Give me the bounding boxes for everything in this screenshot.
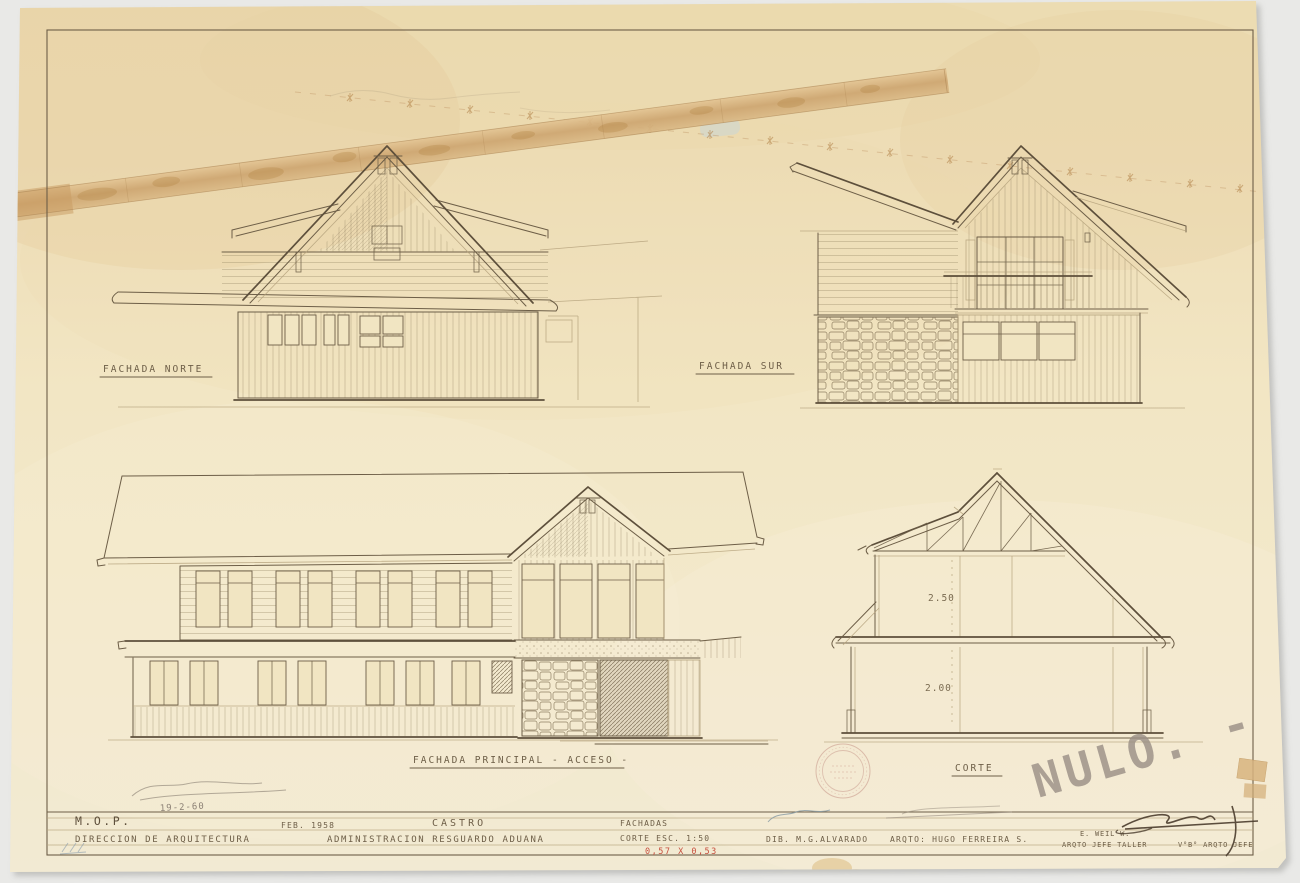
- south-left-wall: [818, 233, 958, 315]
- south-lower-windows: [963, 322, 1075, 360]
- scanner-background: 2.50 2.00 FACHADA NORTE FACHADA SUR FACH…: [0, 0, 1300, 883]
- label-section: CORTE: [955, 763, 994, 774]
- title-scale: CORTE ESC. 1:50: [620, 834, 710, 843]
- north-upper-siding: [222, 252, 548, 300]
- title-project: ADMINISTRACION RESGUARDO ADUANA: [327, 835, 545, 845]
- title-agency: M.O.P.: [75, 814, 132, 828]
- label-south-elevation: FACHADA SUR: [699, 361, 784, 372]
- label-main-elevation: FACHADA PRINCIPAL - ACCESO -: [413, 755, 629, 766]
- title-content: FACHADAS: [620, 819, 668, 828]
- title-architect: ARQTO: HUGO FERREIRA S.: [890, 835, 1028, 844]
- south-balcony: [944, 272, 1092, 308]
- title-location: CASTRO: [432, 818, 486, 829]
- main-upper-band: [180, 563, 512, 640]
- title-date: FEB. 1958: [281, 821, 335, 830]
- title-department: DIRECCION DE ARQUITECTURA: [75, 835, 250, 845]
- upper-floor-height-dim: 2.50: [928, 593, 955, 604]
- title-approval: V°B° ARQTO JEFE: [1178, 841, 1253, 849]
- title-chief-title: ARQTO JEFE TALLER: [1062, 841, 1147, 849]
- south-stone-wall: [818, 317, 958, 403]
- ground-floor-height-dim: 2.00: [925, 683, 952, 694]
- title-drafter: DIB. M.G.ALVARADO: [766, 835, 868, 844]
- label-north-elevation: FACHADA NORTE: [103, 364, 203, 375]
- title-sheet-size: 0,57 X 0,53: [645, 847, 718, 857]
- scanned-drawing-sheet: 2.50 2.00 FACHADA NORTE FACHADA SUR FACH…: [0, 0, 1300, 883]
